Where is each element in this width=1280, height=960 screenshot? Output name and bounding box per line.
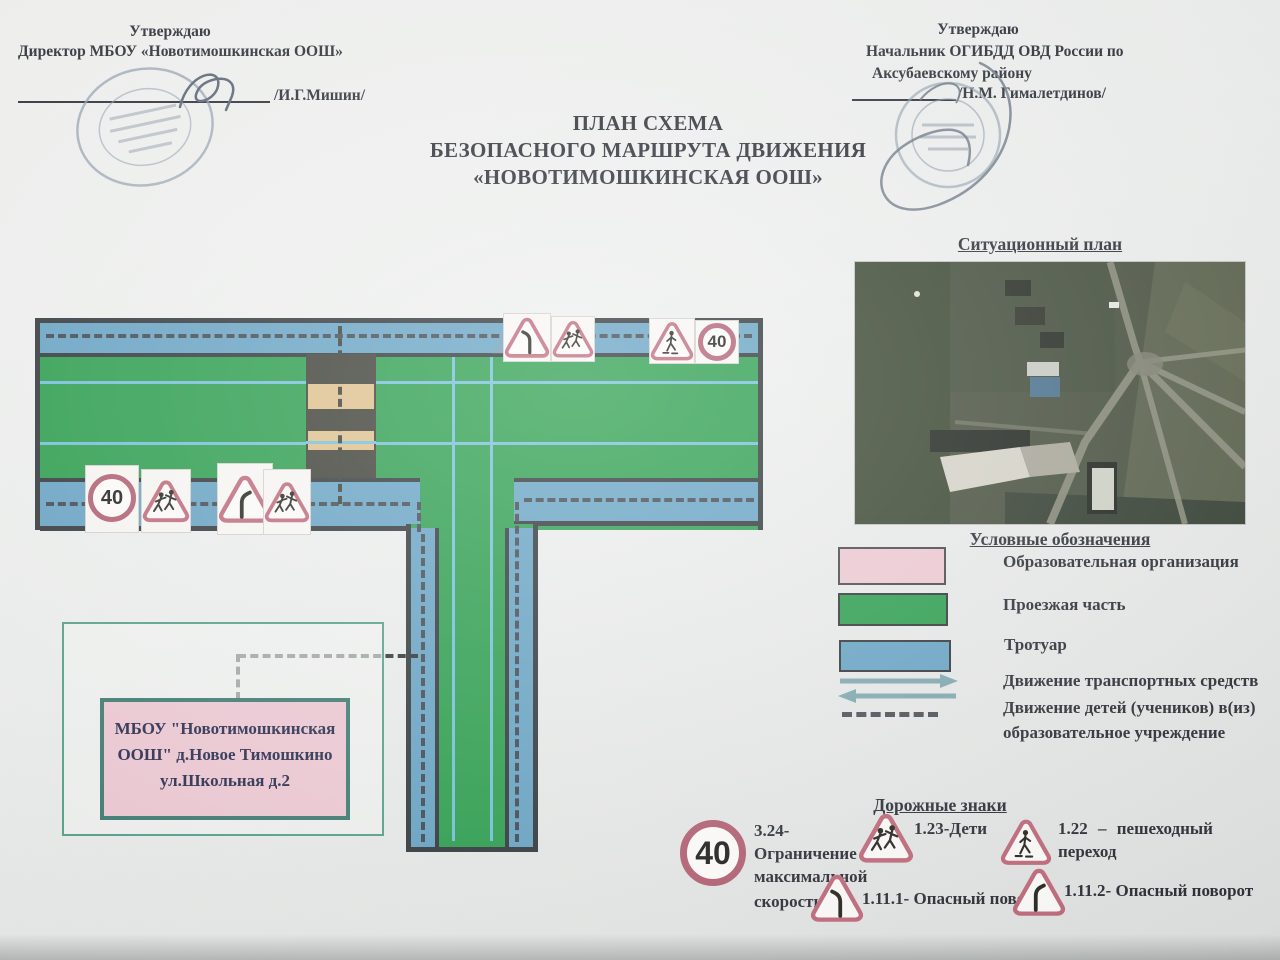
sign-1112-label: 1.11.2- Опасный поворот [1064, 880, 1280, 902]
scanned-plan-document: Утверждаю Директор МБОУ «Новотимошкинска… [0, 0, 1280, 960]
road-sign-40-top: 40 [696, 321, 738, 363]
signature-left [160, 62, 270, 122]
lane-line-horizontal-1 [40, 381, 758, 384]
legend-label-traffic: Движение транспортных средств [1003, 670, 1280, 692]
route-dash-crosswalk [338, 326, 342, 504]
sign-324-label-2: Ограничение [754, 843, 857, 865]
route-dash-bottom-right-sidewalk [524, 498, 754, 502]
road-sign-children-top [552, 317, 594, 361]
lane-line-vertical-1 [452, 357, 455, 841]
lane-line-vertical-2 [490, 357, 493, 841]
route-dash-corner-left [417, 502, 421, 532]
road-sign-children-bottom-2 [264, 470, 310, 534]
speed-limit-value: 40 [88, 474, 136, 522]
road-sign-40-bottom: 40 [86, 466, 138, 532]
legend-label-sidewalk: Тротуар [1004, 634, 1280, 656]
approval-left-name: /И.Г.Мишин/ [274, 86, 365, 106]
satellite-image [855, 262, 1245, 524]
route-dash-vertical-right [515, 502, 519, 842]
sign-123-label: 1.23-Дети [914, 818, 987, 840]
traffic-arrows-icon [836, 672, 960, 704]
school-label-line2: ООШ" д.Новое Тимошкино [104, 742, 346, 768]
page-title-line3: «НОВОТИМОШКИНСКАЯ ООШ» [398, 164, 898, 191]
sidewalk-bottom-right [514, 478, 758, 526]
sign-curve2-legend [1012, 866, 1066, 918]
speed-limit-value: 40 [698, 323, 736, 361]
sign-324-label-1: 3.24- [754, 820, 789, 842]
school-building: МБОУ "Новотимошкинская ООШ" д.Новое Тимо… [100, 698, 350, 820]
legend-label-children-1: Движение детей (учеников) в(из) [1003, 697, 1280, 719]
school-label-line3: ул.Школьная д.2 [104, 768, 346, 794]
sign-pedestrian-legend [1000, 818, 1052, 866]
route-dash-vertical-left [421, 534, 425, 842]
road-sign-pedestrian-top [650, 319, 694, 363]
legend-swatch-sidewalk [839, 640, 951, 672]
school-label-line1: МБОУ "Новотимошкинская [104, 716, 346, 742]
legend-swatch-roadway [838, 593, 948, 626]
page-title: ПЛАН СХЕМА БЕЗОПАСНОГО МАРШРУТА ДВИЖЕНИЯ… [398, 110, 898, 191]
sign-122-label-1: 1.22 – пешеходный [1058, 818, 1280, 840]
sign-40-legend: 40 [680, 820, 746, 886]
situational-plan-title: Ситуационный план [930, 233, 1150, 255]
approval-right-word: Утверждаю [868, 20, 1088, 40]
sidewalk-vertical-left [411, 528, 439, 847]
page-title-line1: ПЛАН СХЕМА [398, 110, 898, 137]
legend-label-school: Образовательная организация [1003, 551, 1280, 573]
children-route-dash-icon [842, 712, 938, 717]
legend-label-children-2: образовательное учреждение [1003, 722, 1280, 744]
route-dash-top-sidewalk [46, 334, 752, 338]
page-title-line2: БЕЗОПАСНОГО МАРШРУТА ДВИЖЕНИЯ [398, 137, 898, 164]
lane-line-horizontal-2 [40, 442, 758, 445]
sidewalk-vertical-right [505, 528, 533, 847]
sign-122-label-2: переход [1058, 841, 1116, 863]
legend-label-roadway: Проезжая часть [1003, 594, 1280, 616]
sign-curve1-legend [810, 873, 864, 923]
legend-swatch-school [838, 547, 946, 585]
legend-title: Условные обозначения [955, 528, 1165, 550]
road-sign-curve-top [504, 314, 550, 361]
sign-children-legend [858, 812, 914, 864]
road-sign-children-bottom-1 [142, 470, 190, 532]
approval-left-word: Утверждаю [30, 22, 310, 42]
